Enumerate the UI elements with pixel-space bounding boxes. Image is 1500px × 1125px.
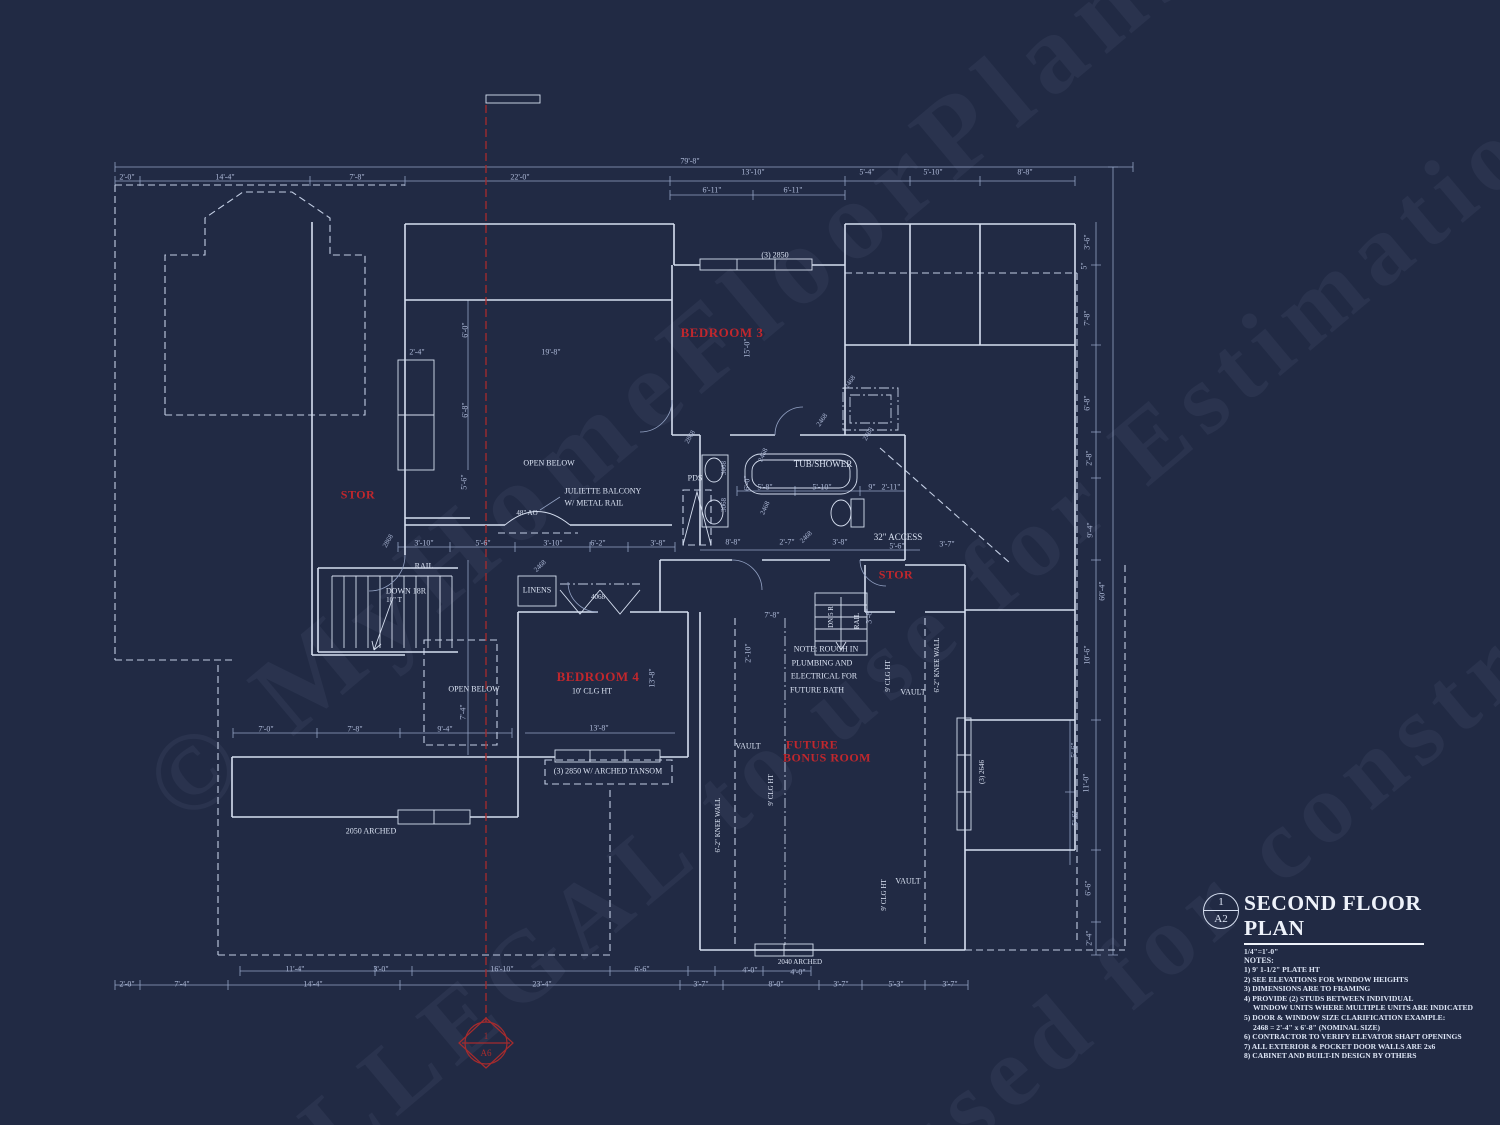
note-line: 7) ALL EXTERIOR & POCKET DOOR WALLS ARE … (1244, 1042, 1474, 1052)
dimension-label: 7'-8" (1083, 310, 1092, 325)
dimension-label: 2'-11" (881, 483, 900, 492)
feature-label: (3) 2646 (978, 760, 986, 784)
dimension-label: 5'-4" (859, 168, 874, 177)
dimension-label: 3'-8" (865, 608, 874, 623)
feature-label: DN 5 R (827, 606, 835, 628)
door-size-label: 3068 (720, 461, 728, 475)
feature-label: (3) 2850 (761, 251, 788, 260)
feature-label: LINENS (523, 586, 551, 595)
room-label: STOR (879, 568, 913, 583)
dimension-label: 6'-11" (702, 186, 721, 195)
section-cut-line (459, 105, 513, 1068)
note-line: 2) SEE ELEVATIONS FOR WINDOW HEIGHTS (1244, 975, 1474, 985)
dimension-label: 9'-4" (1086, 522, 1095, 537)
feature-label: 9' CLG HT (880, 879, 888, 911)
dimension-label: 7'-8" (764, 611, 779, 620)
dimension-label: 3'-8" (650, 539, 665, 548)
dimension-label: 6'-6" (1084, 880, 1093, 895)
drawing-title: SECOND FLOOR PLAN (1244, 891, 1424, 945)
dimension-label: 4'-0" (742, 966, 757, 975)
note-line: 5) DOOR & WINDOW SIZE CLARIFICATION EXAM… (1244, 1013, 1474, 1023)
note-line: WINDOW UNITS WHERE MULTIPLE UNITS ARE IN… (1244, 1003, 1474, 1013)
dimension-label: 5'-6" (1071, 810, 1080, 825)
dimension-label: 3'-7" (942, 980, 957, 989)
dimension-label: 4'-0" (790, 968, 805, 977)
dimension-label: 6'-8" (461, 402, 470, 417)
feature-label: VAULT (895, 877, 920, 886)
feature-label: 2040 ARCHED (778, 958, 822, 966)
feature-label: OPEN BELOW (523, 459, 574, 468)
dimension-label: 14'-4" (215, 173, 234, 182)
feature-label: PDS (688, 474, 703, 483)
feature-label: ELECTRICAL FOR (791, 672, 857, 681)
feature-label: OPEN BELOW (448, 685, 499, 694)
dimension-label: 23'-4" (532, 980, 551, 989)
feature-label: 9' CLG HT (884, 660, 892, 692)
note-line: 1) 9' 1-1/2" PLATE HT (1244, 965, 1474, 975)
room-label: BONUS ROOM (783, 751, 871, 766)
dimension-label: 2'-0" (119, 980, 134, 989)
note-line: 6) CONTRACTOR TO VERIFY ELEVATOR SHAFT O… (1244, 1032, 1474, 1042)
feature-label: 6'-2" KNEE WALL (933, 638, 941, 693)
dimension-label: 2'-4" (409, 348, 424, 357)
dimension-label: 5" (1080, 262, 1089, 269)
feature-label: 10" T (386, 596, 402, 604)
dimension-label: 3'-7" (939, 540, 954, 549)
dimension-label: 6'-0" (743, 475, 752, 490)
dimension-label: 14'-4" (303, 980, 322, 989)
feature-label: 6'-2" KNEE WALL (714, 798, 722, 853)
dimension-label: 9" (868, 483, 875, 492)
notes-list: 1) 9' 1-1/2" PLATE HT2) SEE ELEVATIONS F… (1244, 965, 1474, 1061)
door-size-label: 3068 (720, 498, 728, 512)
feature-label: 32" ACCESS (874, 532, 922, 542)
dimension-label: 5'-8" (757, 483, 772, 492)
dimension-label: 3'-10" (543, 539, 562, 548)
drawing-scale: 1/4"=1'-0" (1244, 947, 1475, 956)
blueprint-canvas: © MyHomeFloorPlans.comILLEGAL to use for… (0, 0, 1500, 1125)
dimension-label: 8'-8" (725, 538, 740, 547)
feature-label: VAULT (735, 742, 760, 751)
dimension-label: 19'-8" (541, 348, 560, 357)
dimension-label: 8'-8" (1017, 168, 1032, 177)
feature-label: JULIETTE BALCONY (565, 487, 642, 496)
feature-label: (3) 2850 W/ ARCHED TANSOM (554, 767, 662, 776)
feature-label: PLUMBING AND (792, 659, 853, 668)
dimension-label: 5'-3" (888, 980, 903, 989)
feature-label: 9' CLG HT (767, 774, 775, 806)
dimension-label: 3'-6" (1083, 234, 1092, 249)
dimension-label: 2'-7" (779, 538, 794, 547)
dimension-label: 8'-0" (768, 980, 783, 989)
dimension-label: 15'-0" (743, 338, 752, 357)
dimension-label: 13'-8" (648, 668, 657, 687)
dimension-label: 5'-6" (889, 542, 904, 551)
walls (232, 222, 1075, 950)
dimension-label: 3'-7" (833, 980, 848, 989)
feature-label: TUB/SHOWER (794, 459, 853, 469)
dimension-label: 60'-4" (1098, 581, 1107, 600)
dimension-label: 13'-10" (741, 168, 764, 177)
dimension-label: 6'-11" (783, 186, 802, 195)
section-marker-sheet: A6 (481, 1048, 492, 1058)
dimension-label: 3'-10" (414, 539, 433, 548)
dimension-label: 6'-0" (461, 322, 470, 337)
dimension-label: 7'-0" (258, 725, 273, 734)
dimension-label: 79'-8" (680, 157, 699, 166)
dimension-label: 3'-8" (832, 538, 847, 547)
feature-label: FUTURE BATH (790, 686, 844, 695)
dimension-label: 9'-4" (437, 725, 452, 734)
dimension-label: 11'-0" (1082, 773, 1091, 792)
feature-label: 48" AO (516, 509, 537, 517)
dimension-label: 2'-8" (1085, 450, 1094, 465)
dimension-label: 7'-4" (174, 980, 189, 989)
dimension-label: 7'-8" (347, 725, 362, 734)
notes-heading: NOTES: (1244, 956, 1475, 965)
detail-reference-bubble: 1 A2 (1203, 893, 1239, 929)
dimension-label: 2'-10" (744, 643, 753, 662)
dimension-label: 13'-8" (589, 724, 608, 733)
dimension-label: 11'-4" (285, 965, 304, 974)
dimension-label: 5'-6" (475, 539, 490, 548)
dimension-label: 5'-6" (1070, 742, 1079, 757)
feature-label: W/ METAL RAIL (564, 499, 623, 508)
dimension-label: 10'-6" (1083, 645, 1092, 664)
sheet-reference: A2 (1204, 911, 1238, 927)
dimension-label: 3'-0" (373, 965, 388, 974)
section-marker-number: 1 (484, 1031, 489, 1041)
note-line: 3) DIMENSIONS ARE TO FRAMING (1244, 984, 1474, 994)
dimension-label: 5'-10" (812, 483, 831, 492)
dimension-label: 2'-0" (119, 173, 134, 182)
dimension-label: 6'-2" (590, 539, 605, 548)
feature-label: 2050 ARCHED (346, 827, 396, 836)
note-line: 4) PROVIDE (2) STUDS BETWEEN INDIVIDUAL (1244, 994, 1474, 1004)
dimension-label: 5'-10" (923, 168, 942, 177)
feature-label: 10' CLG HT (572, 687, 612, 696)
feature-label: NOTE: ROUGH IN (794, 645, 858, 654)
room-label: BEDROOM 4 (557, 669, 640, 685)
room-label: STOR (341, 488, 375, 503)
note-line: 2468 = 2'-4" x 6'-8" (NOMINAL SIZE) (1244, 1023, 1474, 1033)
dimension-label: 7'-8" (349, 173, 364, 182)
dimension-label: 7'-4" (459, 704, 468, 719)
dimension-label: 5'-6" (460, 474, 469, 489)
dimension-label: 3'-7" (693, 980, 708, 989)
feature-label: VAULT (900, 688, 925, 697)
note-line: 8) CABINET AND BUILT-IN DESIGN BY OTHERS (1244, 1051, 1474, 1061)
feature-label: RAIL (415, 562, 434, 571)
feature-label: 4068 (591, 593, 605, 601)
dimension-label: 2'-4" (1085, 930, 1094, 945)
title-block: 1 A2 SECOND FLOOR PLAN 1/4"=1'-0" NOTES:… (1200, 891, 1475, 1061)
dimension-label: 6'-6" (634, 965, 649, 974)
detail-number: 1 (1204, 894, 1238, 911)
dimension-label: 6'-8" (1083, 395, 1092, 410)
feature-label: DOWN 18R (386, 587, 426, 596)
dimension-label: 16'-10" (490, 965, 513, 974)
dimension-label: 22'-0" (510, 173, 529, 182)
feature-label: RAIL (853, 613, 861, 629)
